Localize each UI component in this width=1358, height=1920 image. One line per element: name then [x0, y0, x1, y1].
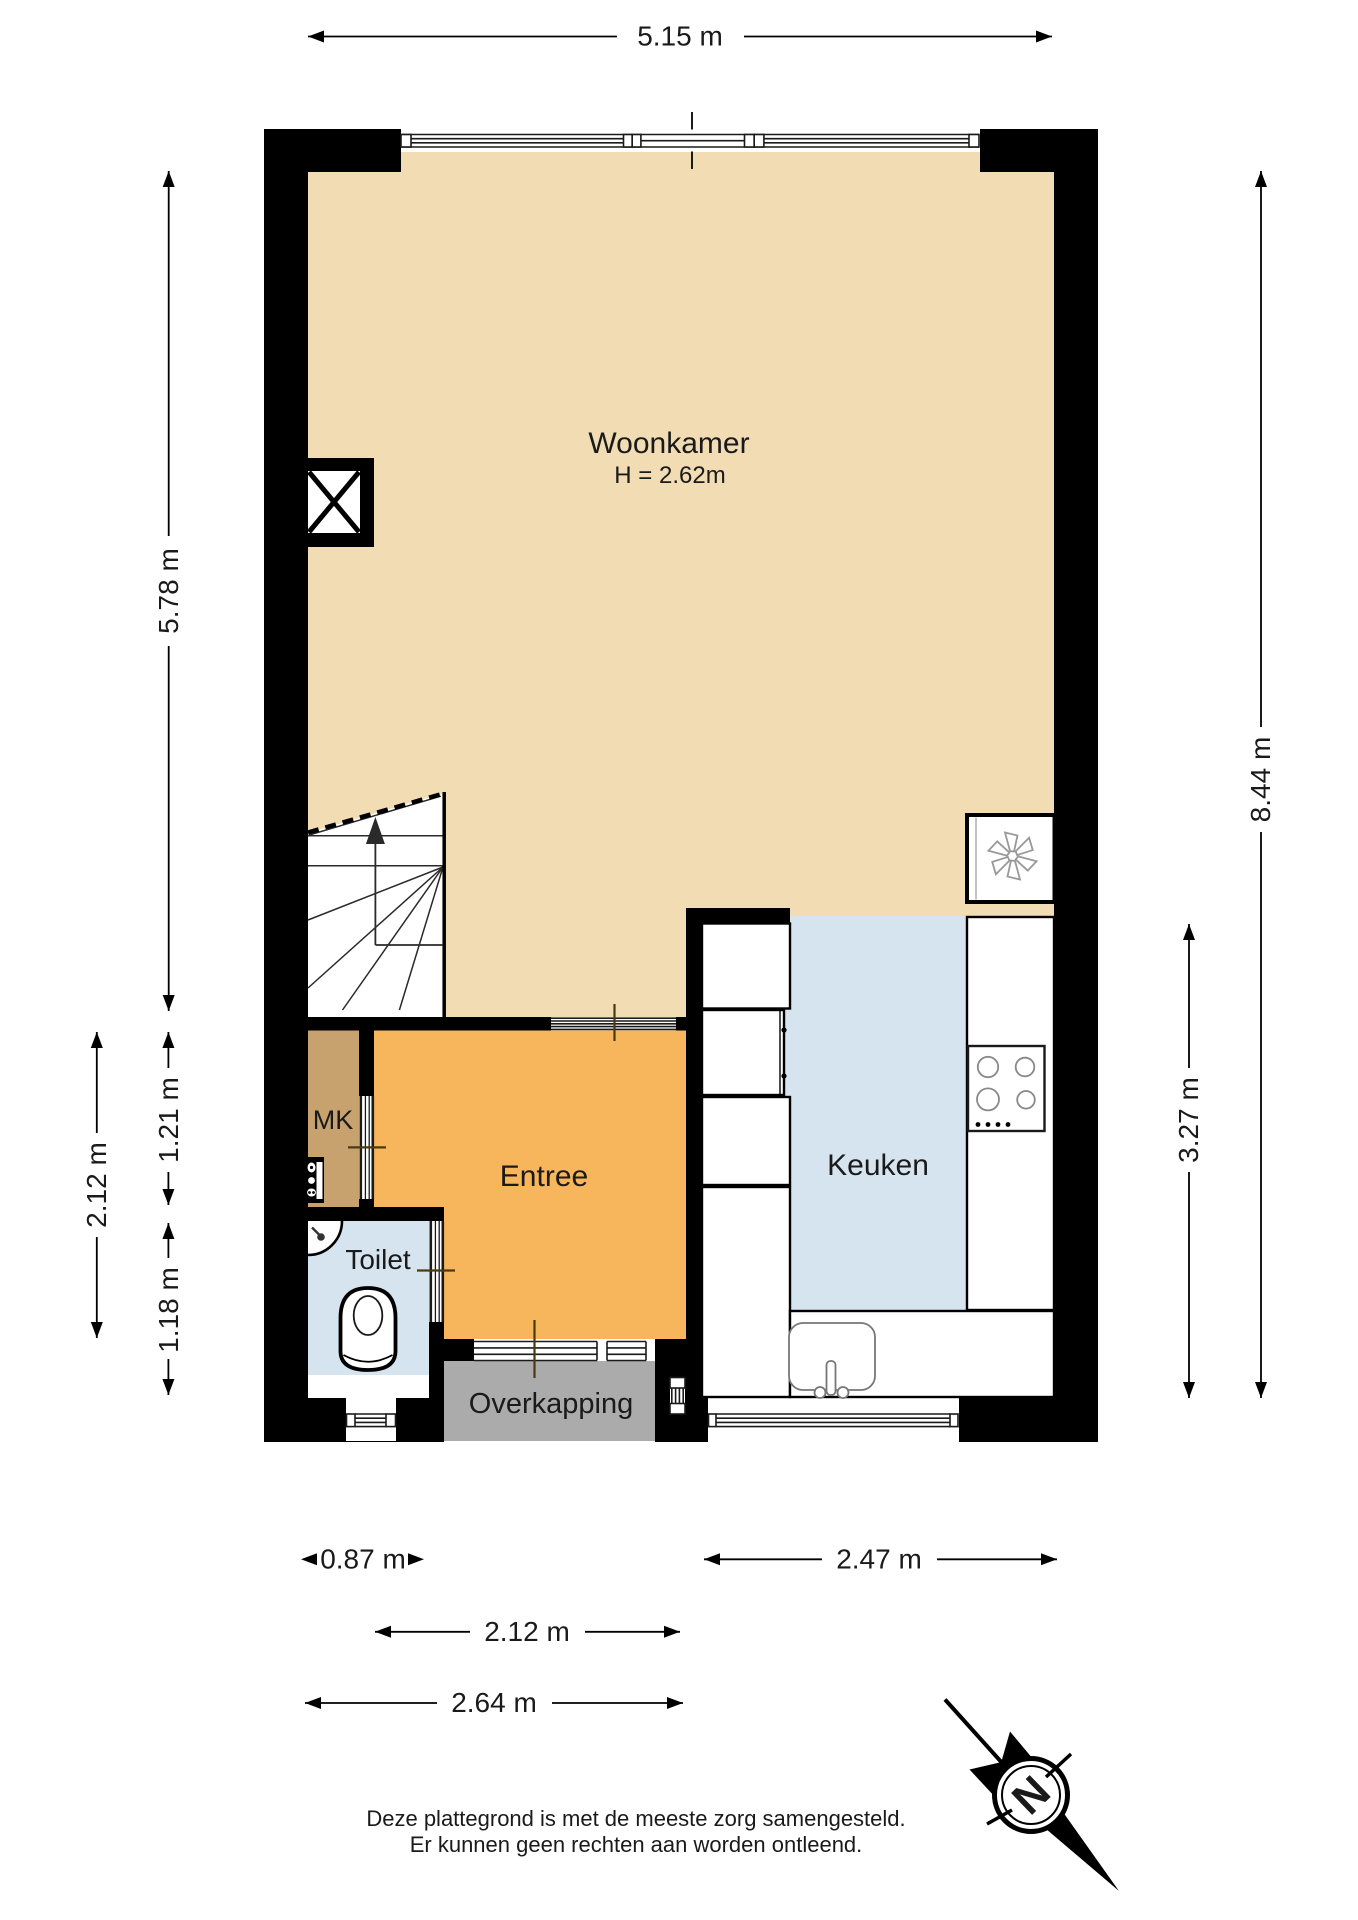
svg-text:8.44 m: 8.44 m: [1245, 737, 1276, 823]
svg-text:0.87 m: 0.87 m: [320, 1543, 406, 1574]
svg-text:2.12 m: 2.12 m: [81, 1142, 112, 1228]
svg-text:Overkapping: Overkapping: [469, 1388, 633, 1420]
svg-text:Deze plattegrond is met de mee: Deze plattegrond is met de meeste zorg s…: [366, 1806, 905, 1831]
svg-text:Toilet: Toilet: [345, 1244, 411, 1275]
svg-text:3.27 m: 3.27 m: [1173, 1077, 1204, 1163]
svg-text:5.78 m: 5.78 m: [153, 548, 184, 634]
svg-text:Keuken: Keuken: [827, 1149, 929, 1182]
svg-text:Woonkamer: Woonkamer: [588, 427, 749, 460]
svg-text:MK: MK: [313, 1105, 354, 1135]
svg-text:1.21 m: 1.21 m: [153, 1077, 184, 1163]
svg-text:Entree: Entree: [500, 1160, 588, 1193]
svg-text:Er kunnen geen rechten aan wor: Er kunnen geen rechten aan worden ontlee…: [410, 1832, 863, 1857]
svg-text:2.47 m: 2.47 m: [836, 1543, 922, 1574]
svg-text:2.64 m: 2.64 m: [451, 1687, 537, 1718]
svg-text:2.12 m: 2.12 m: [484, 1616, 570, 1647]
svg-text:5.15 m: 5.15 m: [637, 21, 723, 52]
svg-text:1.18 m: 1.18 m: [153, 1267, 184, 1353]
svg-text:H = 2.62m: H = 2.62m: [614, 462, 725, 489]
